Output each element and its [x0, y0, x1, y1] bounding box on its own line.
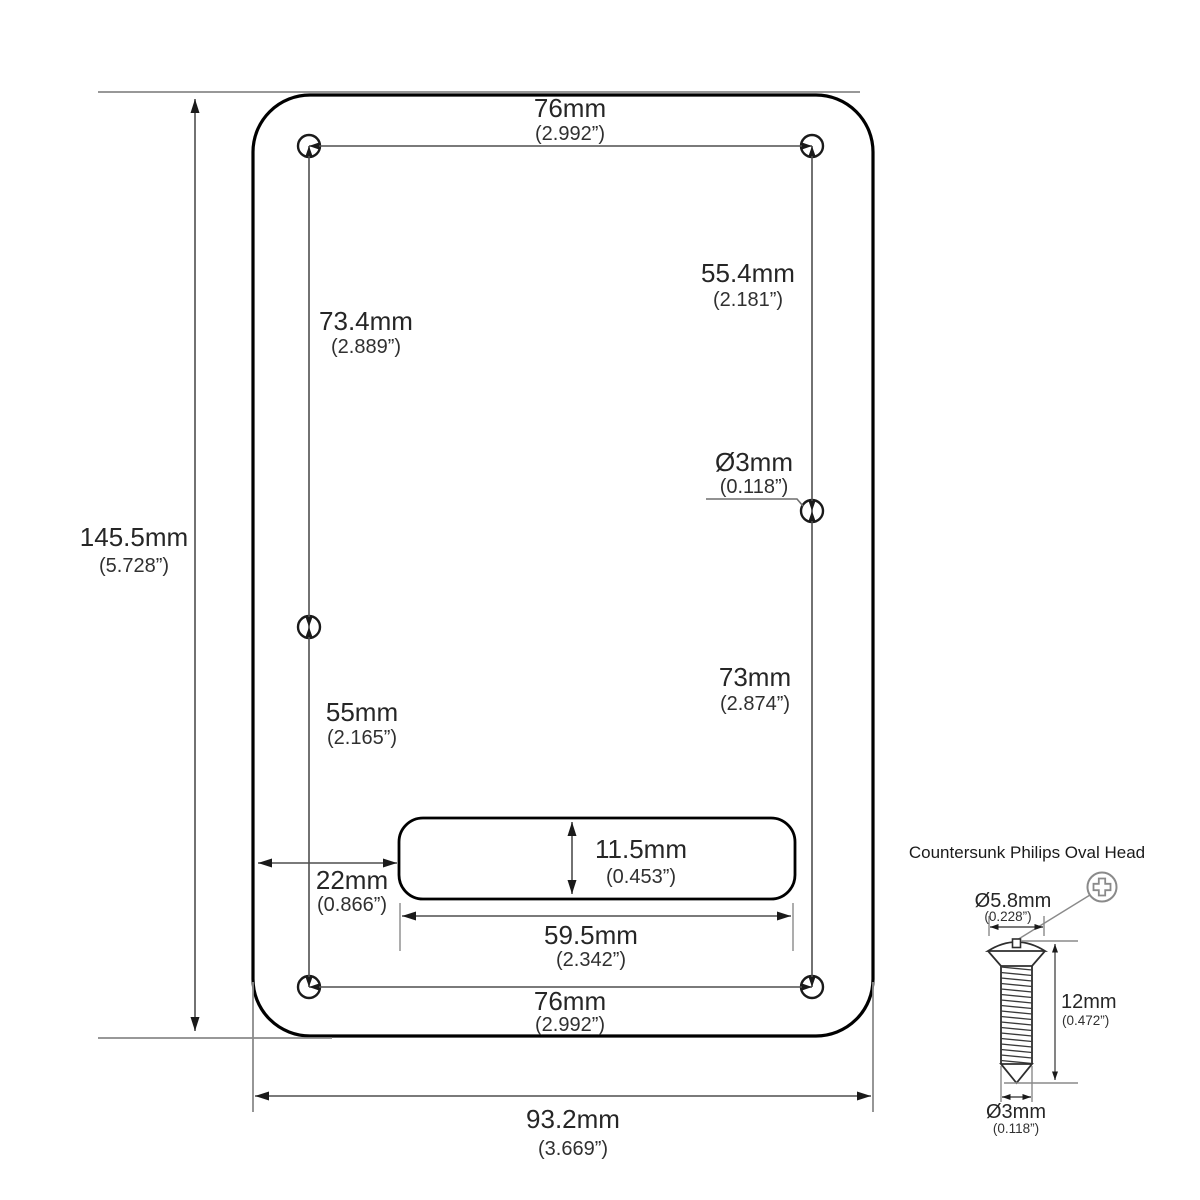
- label-upper-left-mm: 73.4mm: [319, 306, 413, 336]
- label-slot-width-mm: 59.5mm: [544, 920, 638, 950]
- label-head-diameter-in: (0.228”): [984, 909, 1031, 924]
- label-lower-right-mm: 73mm: [719, 662, 791, 692]
- screw-thread: [1001, 967, 1032, 1064]
- label-upper-right-mm: 55.4mm: [701, 258, 795, 288]
- label-screw-length-mm: 12mm: [1061, 991, 1117, 1013]
- label-screw-length-in: (0.472”): [1062, 1013, 1109, 1028]
- label-overall-height-in: (5.728”): [99, 555, 169, 577]
- screw-tip: [1001, 1064, 1032, 1083]
- label-upper-left-in: (2.889”): [331, 336, 401, 358]
- label-top-width-in: (2.992”): [535, 123, 605, 145]
- technical-drawing-canvas: 76mm (2.992”) 73.4mm (2.889”) 55.4mm (2.…: [0, 0, 1200, 1200]
- leader-line-hole-diameter: [706, 499, 803, 506]
- label-lower-left-mm: 55mm: [326, 697, 398, 727]
- label-overall-width-mm: 93.2mm: [526, 1104, 620, 1134]
- label-slot-height-mm: 11.5mm: [595, 834, 687, 864]
- label-hole-diameter-mm: Ø3mm: [715, 447, 793, 477]
- phillips-head-icon: [1088, 873, 1117, 902]
- label-upper-right-in: (2.181”): [713, 289, 783, 311]
- screw-head-slot: [1013, 939, 1021, 948]
- label-bottom-width-in: (2.992”): [535, 1014, 605, 1036]
- label-top-width-mm: 76mm: [534, 93, 606, 123]
- technical-drawing-page: 76mm (2.992”) 73.4mm (2.889”) 55.4mm (2.…: [0, 0, 1200, 1200]
- label-overall-height-mm: 145.5mm: [80, 522, 188, 552]
- label-thread-diameter-in: (0.118”): [993, 1121, 1039, 1136]
- label-bottom-width-mm: 76mm: [534, 986, 606, 1016]
- label-slot-width-in: (2.342”): [556, 949, 626, 971]
- label-thread-diameter-mm: Ø3mm: [986, 1101, 1046, 1123]
- label-hole-diameter-in: (0.118”): [720, 476, 789, 498]
- label-slot-offset-in: (0.866”): [317, 894, 387, 916]
- label-slot-height-in: (0.453”): [606, 866, 676, 888]
- label-slot-offset-mm: 22mm: [316, 865, 388, 895]
- label-lower-left-in: (2.165”): [327, 727, 397, 749]
- label-overall-width-in: (3.669”): [538, 1138, 608, 1160]
- label-lower-right-in: (2.874”): [720, 693, 790, 715]
- screw-head-countersink: [988, 951, 1045, 966]
- screw-detail-title: Countersunk Philips Oval Head: [909, 843, 1145, 862]
